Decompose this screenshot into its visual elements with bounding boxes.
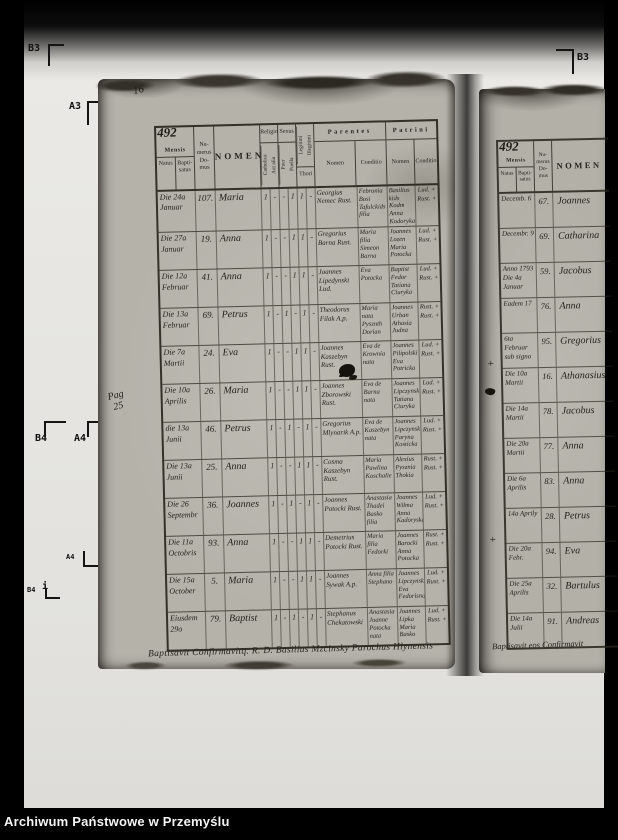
- col-parentes: Parentes Nomen Conditio: [314, 122, 387, 186]
- cell-patrini-nomen: Joannes Lipczynski Tatiana Ciuryka: [392, 379, 421, 417]
- cell-nomen: Jacobus: [558, 402, 615, 437]
- register-row: Die 25a Aprilis32.Bartulus: [507, 577, 618, 614]
- col-nomen: NOMEN: [214, 125, 262, 188]
- cell-natus-date: Die 7a Martii: [161, 346, 200, 384]
- cell-nomen: Maria: [216, 189, 263, 230]
- cell-natus-date: Die 13a Junii: [164, 460, 203, 498]
- cell-natus-date: Die 20a Febr.: [506, 543, 543, 578]
- register-row: Decembr. 969.Catharina: [500, 227, 611, 264]
- reg-mark-bracket-icon: [45, 588, 60, 599]
- cell-house-number: 26.: [200, 384, 221, 421]
- cell-patrini-nomen: Joannes Barocki Anna Potocka: [396, 531, 425, 569]
- col-patrini-conditio-label: Conditio: [414, 139, 437, 184]
- cell-house-number: 25.: [202, 460, 223, 497]
- register-row: Die 6a Aprilis83.Anna: [505, 472, 616, 509]
- cell-nomen: Petrus: [221, 421, 268, 459]
- cell-nomen: Anna: [218, 269, 265, 307]
- col-patrini: Patrini Nomen Conditio: [386, 121, 437, 184]
- cell-nomen: Joannes: [223, 497, 270, 535]
- cell-parentes-nomen: Demetrius Potocki Rust.: [324, 532, 367, 570]
- reg-mark-b3-right: B3: [577, 52, 589, 63]
- cell-parentes-conditio: Febronia Bosi Tafulckids filia: [358, 186, 389, 227]
- col-sexus: Sexus Puer Puella: [278, 125, 298, 187]
- cell-natus-date: Die 10a Aprilis: [162, 384, 201, 422]
- register-row: Die 24a Januar107.Maria1--11-Georgius Ne…: [158, 185, 439, 233]
- cell-natus-date: Die 15a October: [167, 574, 206, 612]
- col-nomen: NOMEN: [552, 140, 609, 191]
- register-row: Eadem 1776.Anna: [501, 297, 612, 334]
- col-natus-label: Natus: [499, 168, 517, 192]
- cell-house-number: 46.: [201, 422, 222, 459]
- cell-nomen: Bartulus: [561, 577, 618, 612]
- cell-patrini-nomen: Basilius kids Kodm Anna Kodoryka: [388, 186, 417, 227]
- cell-natus-date: Die 14a Martii: [504, 403, 541, 438]
- cell-parentes-conditio: Eva de Barna nata: [362, 380, 393, 418]
- cell-parentes-conditio: Maria Pawlina Koschalie: [364, 456, 395, 494]
- cell-house-number: 59.: [537, 263, 556, 297]
- col-catholica-label: Catholica: [261, 145, 270, 185]
- cell-patrini-conditio: Rust. + Rust. +: [424, 530, 447, 568]
- cell-parentes-conditio: Anna filia Stephano: [367, 569, 398, 607]
- cell-patrini-nomen: Joannes Lipczynski Paryna Kosticka: [393, 417, 422, 455]
- cell-house-number: 69.: [536, 228, 555, 262]
- cell-house-number: 78.: [540, 403, 559, 437]
- col-parentes-nomen-label: Nomen: [314, 141, 356, 186]
- page-number-left: 492: [157, 124, 177, 140]
- cell-patrini-conditio: Lud. + Rust. +: [425, 568, 448, 606]
- col-religio: Religio Catholica Aut alia: [260, 125, 280, 187]
- cell-house-number: 5.: [205, 574, 226, 611]
- col-numerus-domus: Nu- merus Do- mus: [194, 127, 216, 189]
- cell-nomen: Anna: [558, 437, 615, 472]
- page-number-right: 492: [499, 139, 519, 155]
- cell-nomen: Anna: [555, 297, 612, 332]
- cell-patrini-conditio: Rust. + Rust. +: [422, 454, 445, 492]
- plus-mark: +: [489, 534, 496, 546]
- cell-house-number: 79.: [206, 612, 227, 649]
- cell-nomen: Gregorius: [556, 332, 613, 367]
- cell-parentes-nomen: Joannes Kaszebyn Rust.: [319, 342, 362, 380]
- plus-mark: +: [487, 358, 494, 370]
- cell-natus-date: Die 12a Februar: [160, 270, 199, 308]
- cell-parentes-nomen: Gregorius Barna Rust.: [317, 228, 360, 266]
- reg-mark-b4-small: B4: [27, 586, 35, 594]
- cell-nomen: Joannes: [553, 192, 610, 227]
- cell-parentes-conditio: Eva de Krownia nata: [361, 342, 392, 380]
- cell-parentes-conditio: Maria filia Simeon Barna: [359, 228, 390, 266]
- col-patrini-nomen-label: Nomen: [386, 140, 415, 185]
- cell-patrini-nomen: Joannes Wilma Anna Kadoryska: [395, 493, 424, 531]
- cell-nomen: Anna: [217, 231, 264, 269]
- cell-parentes-conditio: Maria filia Fedorki: [366, 531, 397, 569]
- col-baptisatus-label: Bapti- satus: [516, 167, 534, 191]
- cell-house-number: 107.: [196, 191, 217, 232]
- col-puella-label: Puella: [287, 145, 296, 185]
- cell-house-number: 77.: [540, 438, 559, 472]
- cell-patrini-nomen: Baptist Fedor Tatiana Ciuryka: [389, 265, 418, 303]
- register-row: 14a Aprily28.Petrus: [506, 507, 617, 544]
- cell-parentes-nomen: Georgius Nemec Rust.: [316, 187, 359, 228]
- cell-patrini-conditio: Lud. + Rust. +: [419, 340, 442, 378]
- cell-patrini-nomen: Joannes Lipczynski Eva Fedorisna: [397, 569, 426, 607]
- reg-mark-bracket-icon: [556, 49, 574, 74]
- cell-natus-date: Die 6a Aprilis: [505, 473, 542, 508]
- cell-house-number: 28.: [542, 508, 561, 542]
- cell-patrini-conditio: Lud. + Rust. +: [423, 492, 446, 530]
- register-row: Anno 1793 Die 4a Januar59.Jacobus: [501, 262, 612, 299]
- cell-natus-date: Die 20a Martii: [504, 438, 541, 473]
- register-row: Decemb. 667.Joannes: [499, 192, 610, 229]
- cell-house-number: 83.: [541, 473, 560, 507]
- cell-parentes-nomen: Stephanus Chekatowski: [326, 608, 369, 646]
- col-mensis: 492 Mensis Natus Bapti- satus: [156, 127, 196, 190]
- cell-house-number: 32.: [543, 578, 562, 612]
- col-numerus-domus: Nu- merus Do- mus: [534, 141, 553, 191]
- cell-parentes-conditio: Eva Potocka: [359, 266, 390, 304]
- col-puer-label: Puer: [279, 145, 288, 185]
- gutter-shadow: [446, 74, 484, 676]
- cell-natus-date: Die 10a Martii: [503, 368, 540, 403]
- reg-mark-a4-left: A4: [74, 433, 86, 444]
- archival-scan-photo: B3 A3 B3 B4 A4 A4 B4 i 16 Pag 25 + + 492…: [0, 0, 618, 840]
- cell-patrini-nomen: Alexius Pysznia Thokia: [394, 455, 423, 493]
- reg-mark-a4-small: A4: [66, 553, 74, 561]
- cell-nomen: Athanasius: [557, 367, 614, 402]
- torn-page-edge: [480, 84, 605, 97]
- register-row: 6ta Februar sub signo95.Gregorius: [502, 332, 613, 369]
- col-mensis: 492 Mensis Natus Bapti- satus: [498, 141, 535, 192]
- cell-nomen: Anna: [559, 472, 616, 507]
- cell-parentes-nomen: Cosma Kaszebyn Rust.: [322, 456, 365, 494]
- cell-patrini-conditio: Lud. + Rust. +: [420, 378, 443, 416]
- reg-mark-bracket-icon: [44, 421, 66, 437]
- cell-natus-date: Die 11a Octobris: [166, 536, 205, 574]
- reg-mark-a3-left: A3: [69, 101, 81, 112]
- cell-natus-date: Anno 1793 Die 4a Januar: [501, 263, 538, 298]
- reg-mark-bracket-icon: [48, 44, 64, 66]
- cell-nomen: Petrus: [560, 507, 617, 542]
- archive-caption: Archiwum Państwowe w Przemyślu: [4, 814, 230, 829]
- col-baptisatus-label: Bapti- satus: [175, 157, 194, 189]
- cell-parentes-conditio: Maria nata Pysznth Dorian: [360, 304, 391, 342]
- col-patrini-label: Patrini: [386, 121, 436, 140]
- cell-nomen: Jacobus: [555, 262, 612, 297]
- cell-nomen: Catharina: [554, 227, 611, 262]
- col-thori: Legitimi Illegitimi Thori: [296, 124, 316, 186]
- left-register-table: 492 Mensis Natus Bapti- satus Nu- merus …: [154, 119, 451, 652]
- cell-patrini-nomen: Joannes Lozen Maria Potocka: [389, 227, 418, 265]
- cell-nomen: Maria: [220, 383, 267, 421]
- register-rows: Decemb. 667.JoannesDecembr. 969.Catharin…: [499, 192, 618, 648]
- cell-house-number: 76.: [537, 298, 556, 332]
- col-legitimi-label: Legitimi: [296, 126, 305, 164]
- cell-patrini-conditio: Lud. + Rust. +: [426, 606, 449, 644]
- col-nomen-label: NOMEN: [552, 140, 609, 171]
- cell-patrini-nomen: Joannes Pilipolski Eva Potricka: [391, 341, 420, 379]
- cell-natus-date: Decembr. 9: [500, 228, 537, 263]
- cell-nomen: Anna: [222, 459, 269, 497]
- col-nomen-label: NOMEN: [214, 125, 260, 161]
- cell-house-number: 41.: [198, 270, 219, 307]
- col-thori-label: Thori: [297, 166, 314, 186]
- folio-corner-note: 16: [132, 83, 145, 97]
- cell-nomen: Eva: [560, 542, 617, 577]
- cell-patrini-conditio: Lud. + Rust. +: [421, 416, 444, 454]
- cell-patrini-nomen: Joannes Lipka Maria Basko: [398, 607, 427, 645]
- cell-parentes-conditio: Eva de Kaszebyn nata: [363, 418, 394, 456]
- cell-patrini-nomen: Joannes Urban Athasia Judna: [390, 303, 419, 341]
- col-parentes-conditio-label: Conditio: [356, 140, 387, 185]
- cell-natus-date: Die 24a Januar: [158, 191, 197, 232]
- cell-parentes-conditio: Anastasia Thadei Basko filia: [365, 494, 396, 532]
- register-row: Die 14a Martii78.Jacobus: [504, 402, 615, 439]
- cell-natus-date: Die 25a Aprilis: [507, 578, 544, 613]
- col-sexus-label: Sexus: [278, 125, 295, 143]
- cell-house-number: 67.: [535, 193, 554, 227]
- reg-mark-bracket-icon: [83, 551, 99, 567]
- cell-nomen: Baptist: [226, 611, 273, 649]
- cell-natus-date: 6ta Februar sub signo: [502, 333, 539, 368]
- col-numerus-domus-label: Nu- merus Do- mus: [194, 127, 214, 174]
- col-aut-alia-label: Aut alia: [269, 145, 278, 185]
- cell-house-number: 93.: [204, 536, 225, 573]
- cell-natus-date: Decemb. 6: [499, 193, 536, 228]
- cell-house-number: 94.: [542, 543, 561, 577]
- cell-patrini-conditio: Rust. + Rust. +: [418, 302, 441, 340]
- cell-parentes-nomen: Joannes Sywak A.p.: [325, 570, 368, 608]
- cell-natus-date: Die 13a Februar: [160, 308, 199, 346]
- register-row: Die 20a Martii77.Anna: [504, 437, 615, 474]
- cell-nomen: Anna: [224, 535, 271, 573]
- cell-patrini-conditio: Lud. + Rust. +: [417, 264, 440, 302]
- cell-house-number: 95.: [538, 333, 557, 367]
- cell-house-number: 16.: [539, 368, 558, 402]
- cell-parentes-nomen: Joannes Lipedynski Lud.: [318, 266, 361, 304]
- cell-parentes-nomen: Gregorius Mlynarik A.p.: [321, 418, 364, 456]
- cell-natus-date: Die 26 Septembr: [165, 498, 204, 536]
- cell-natus-date: Die 27a Januar: [159, 232, 198, 270]
- cell-nomen: Petrus: [218, 307, 265, 345]
- col-illegitimi-label: Illegitimi: [305, 126, 314, 164]
- register-rows: Die 24a Januar107.Maria1--11-Georgius Ne…: [158, 185, 449, 650]
- col-numerus-domus-label: Nu- merus Do- mus: [534, 141, 552, 181]
- cell-house-number: 19.: [197, 232, 218, 269]
- col-religio-label: Religio: [260, 125, 277, 143]
- cell-natus-date: Eadem 17: [501, 298, 538, 333]
- cell-natus-date: 14a Aprily: [506, 508, 543, 543]
- right-register-table: 492 Mensis Natus Bapti- satus Nu- merus …: [496, 138, 618, 650]
- cell-natus-date: die 13a Junii: [163, 422, 202, 460]
- cell-parentes-nomen: Joannes Zborowski Rust.: [320, 380, 363, 418]
- cell-house-number: 24.: [199, 346, 220, 383]
- cell-nomen: Eva: [219, 345, 266, 383]
- table-header: 492 Mensis Natus Bapti- satus Nu- merus …: [156, 121, 437, 192]
- table-header: 492 Mensis Natus Bapti- satus Nu- merus …: [498, 140, 609, 194]
- cell-parentes-conditio: Anastasia Joanne Potocka nata: [368, 607, 399, 645]
- cell-parentes-nomen: Theodorus Filak A.p.: [318, 304, 361, 342]
- col-parentes-label: Parentes: [314, 122, 385, 142]
- cell-parentes-nomen: Joannes Potocki Rust.: [323, 494, 366, 532]
- cell-nomen: Maria: [225, 573, 272, 611]
- cell-patrini-conditio: Lud. + Rust. +: [416, 185, 439, 226]
- cell-patrini-conditio: Lud. + Rust. +: [417, 226, 440, 264]
- cell-house-number: 69.: [198, 308, 219, 345]
- reg-mark-b3-left: B3: [28, 43, 40, 54]
- col-natus-label: Natus: [157, 157, 176, 189]
- cell-natus-date: Eiusdem 29o: [168, 612, 207, 650]
- register-row: Die 20a Febr.94.Eva: [506, 542, 617, 579]
- cell-house-number: 36.: [203, 498, 224, 535]
- register-row: Die 10a Martii16.Athanasius: [503, 367, 614, 404]
